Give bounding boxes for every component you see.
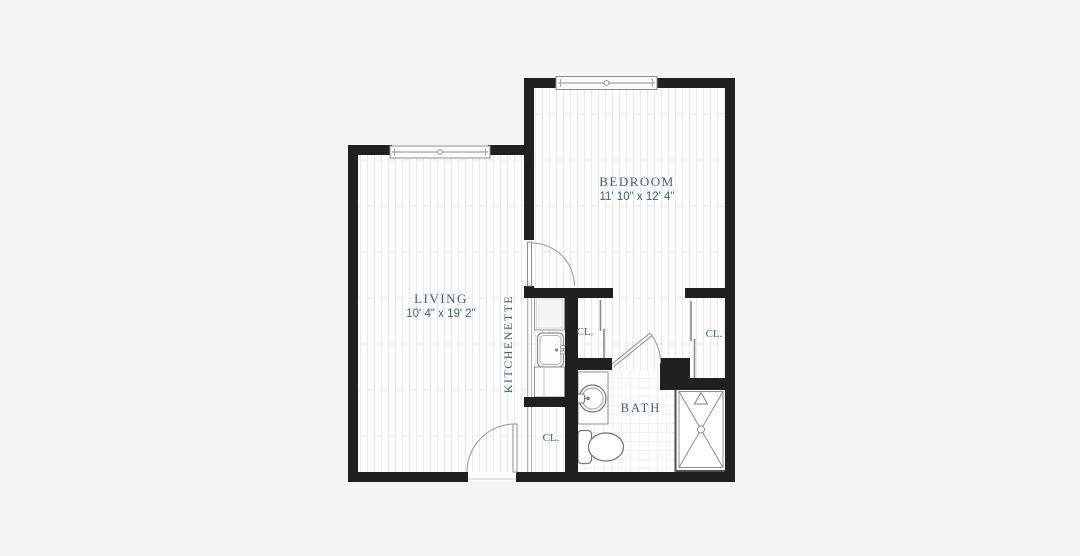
kitchen-faucet-icon [555, 348, 558, 351]
kitchen-sink [538, 333, 564, 367]
wall-segment [516, 472, 735, 482]
bath-faucet-icon [586, 397, 589, 400]
living-window [390, 146, 490, 158]
closet-middle-label: CL. [577, 326, 594, 338]
wall-segment [675, 378, 735, 390]
floorplan-svg: LIVING 10' 4" x 19' 2" BEDROOM 11' 10" x… [0, 0, 1080, 556]
kitchenette-fixtures [535, 297, 566, 397]
kitchen-faucet-icon [561, 351, 566, 354]
living-dimensions: 10' 4" x 19' 2" [406, 308, 475, 320]
wall-segment [655, 78, 735, 88]
wall-segment [348, 145, 392, 155]
wall-segment [725, 78, 735, 482]
kitchen-cabinet [535, 297, 565, 330]
living-label: LIVING [414, 291, 468, 306]
kitchen-counter [535, 367, 565, 397]
kitchenette-label: KITCHENETTE [501, 295, 515, 393]
bath-label: BATH [621, 401, 662, 415]
closet-entry-label: CL. [543, 432, 560, 444]
kitchen-faucet-icon [561, 346, 566, 349]
wall-segment [524, 78, 534, 240]
floorplan-page: LIVING 10' 4" x 19' 2" BEDROOM 11' 10" x… [0, 0, 1080, 556]
wall-segment [565, 288, 578, 472]
bath-faucet-icon [578, 394, 585, 403]
closet-right-label: CL. [706, 328, 723, 340]
shower [676, 388, 727, 471]
toilet-bowl [589, 433, 624, 461]
wall-segment [685, 288, 735, 298]
bedroom-label: BEDROOM [599, 174, 675, 189]
bedroom-window [556, 77, 657, 90]
bedroom-dimensions: 11' 10" x 12' 4" [599, 191, 674, 203]
wall-segment [565, 358, 612, 370]
wall-segment [348, 472, 468, 482]
wall-segment [524, 397, 565, 407]
wall-segment [348, 145, 358, 482]
